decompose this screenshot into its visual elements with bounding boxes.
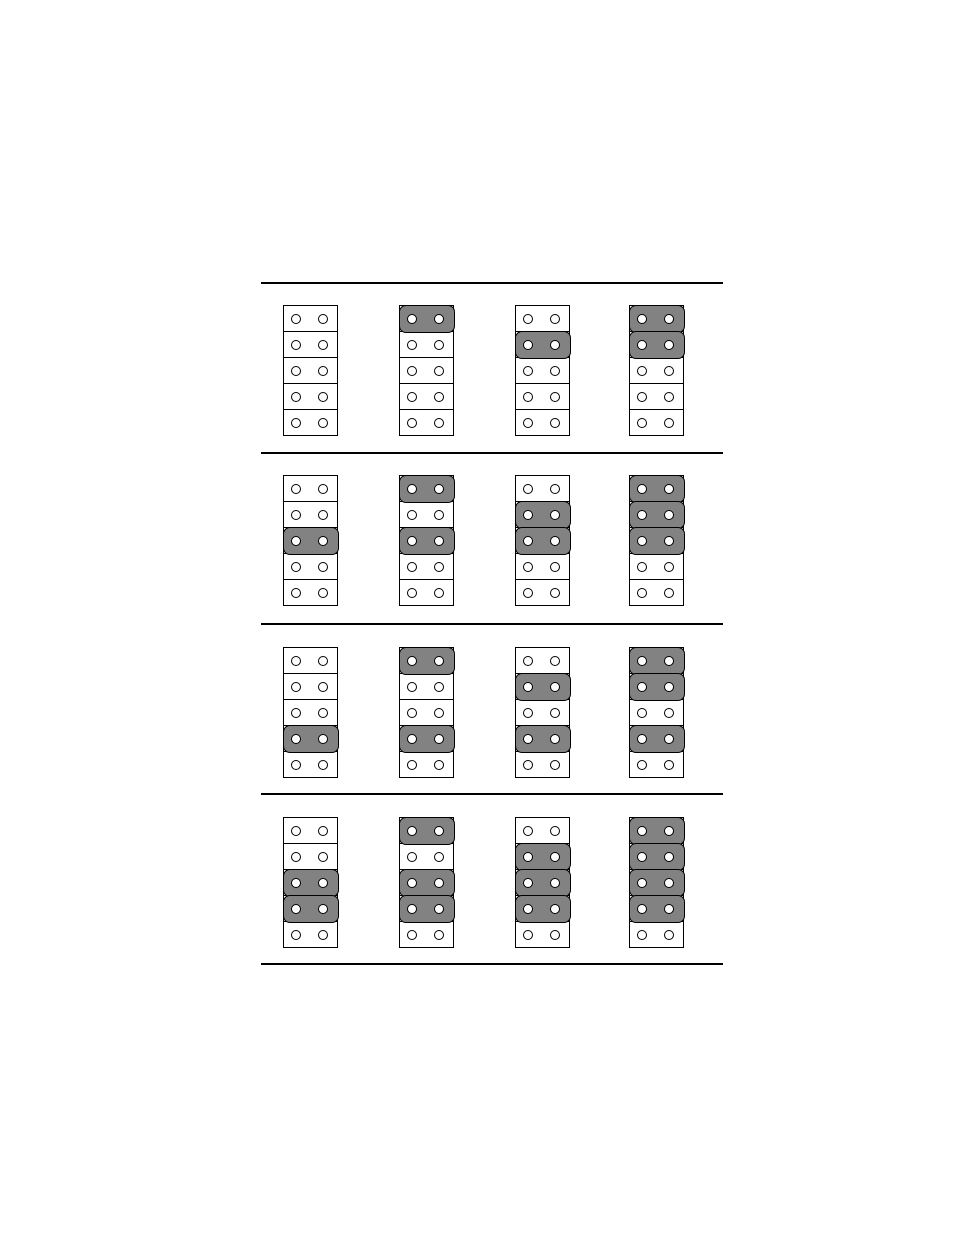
pin-circle [407, 392, 417, 402]
pin-circle [664, 734, 674, 744]
jumper-position [516, 818, 569, 844]
jumper-position [630, 896, 683, 922]
jumper-position [516, 844, 569, 870]
pin-circle [291, 930, 301, 940]
pin-circle [434, 536, 444, 546]
pin-circle [664, 484, 674, 494]
pin-circle [664, 852, 674, 862]
jumper-block [515, 475, 570, 606]
pin-circle [664, 510, 674, 520]
jumper-block [515, 647, 570, 778]
pin-circle [407, 340, 417, 350]
jumper-position [630, 476, 683, 502]
pin-circle [434, 734, 444, 744]
pin-circle [407, 366, 417, 376]
pin-circle [664, 682, 674, 692]
pin-circle [664, 562, 674, 572]
pin-circle [291, 734, 301, 744]
jumper-block [283, 647, 338, 778]
jumper-position [284, 554, 337, 580]
pin-circle [318, 418, 328, 428]
pin-circle [637, 340, 647, 350]
jumper-position [516, 700, 569, 726]
pin-circle [434, 484, 444, 494]
pin-circle [291, 852, 301, 862]
pin-circle [664, 760, 674, 770]
jumper-block [629, 817, 684, 948]
pin-circle [664, 826, 674, 836]
pin-circle [407, 826, 417, 836]
pin-circle [291, 904, 301, 914]
jumper-position [516, 648, 569, 674]
pin-circle [550, 904, 560, 914]
jumper-position [400, 502, 453, 528]
pin-circle [291, 484, 301, 494]
pin-circle [550, 314, 560, 324]
pin-circle [407, 510, 417, 520]
pin-circle [664, 588, 674, 598]
pin-circle [637, 734, 647, 744]
jumper-position [400, 554, 453, 580]
manual-page [0, 0, 954, 1235]
jumper-position [630, 700, 683, 726]
pin-circle [550, 930, 560, 940]
pin-circle [550, 708, 560, 718]
pin-circle [637, 536, 647, 546]
pin-circle [637, 878, 647, 888]
jumper-block [399, 647, 454, 778]
jumper-position [630, 358, 683, 384]
pin-circle [407, 418, 417, 428]
jumper-position [516, 358, 569, 384]
pin-circle [664, 708, 674, 718]
jumper-position [516, 554, 569, 580]
pin-circle [664, 536, 674, 546]
pin-circle [407, 708, 417, 718]
pin-circle [318, 656, 328, 666]
pin-circle [318, 878, 328, 888]
pin-circle [434, 930, 444, 940]
jumper-block [515, 305, 570, 436]
pin-circle [637, 484, 647, 494]
jumper-block [629, 475, 684, 606]
pin-circle [318, 536, 328, 546]
pin-circle [523, 536, 533, 546]
pin-circle [550, 340, 560, 350]
pin-circle [637, 760, 647, 770]
jumper-position [400, 726, 453, 752]
jumper-block [399, 475, 454, 606]
pin-circle [318, 760, 328, 770]
jumper-position [516, 580, 569, 605]
jumper-position [284, 528, 337, 554]
jumper-position [400, 674, 453, 700]
pin-circle [434, 708, 444, 718]
pin-circle [434, 904, 444, 914]
jumper-position [630, 818, 683, 844]
pin-circle [550, 878, 560, 888]
pin-circle [318, 392, 328, 402]
jumper-position [284, 306, 337, 332]
jumper-position [516, 726, 569, 752]
jumper-position [630, 752, 683, 777]
pin-circle [291, 878, 301, 888]
jumper-position [400, 700, 453, 726]
pin-circle [550, 760, 560, 770]
pin-circle [291, 314, 301, 324]
jumper-position [284, 752, 337, 777]
jumper-position [516, 332, 569, 358]
pin-circle [318, 366, 328, 376]
jumper-position [400, 844, 453, 870]
pin-circle [523, 826, 533, 836]
jumper-position [284, 358, 337, 384]
jumper-position [400, 384, 453, 410]
pin-circle [637, 562, 647, 572]
pin-circle [318, 562, 328, 572]
pin-circle [291, 562, 301, 572]
jumper-block [515, 817, 570, 948]
pin-circle [523, 392, 533, 402]
pin-circle [637, 392, 647, 402]
pin-circle [637, 708, 647, 718]
pin-circle [523, 852, 533, 862]
jumper-block [399, 817, 454, 948]
jumper-block [283, 475, 338, 606]
pin-circle [407, 852, 417, 862]
jumper-position [630, 844, 683, 870]
jumper-position [400, 922, 453, 947]
pin-circle [664, 314, 674, 324]
pin-circle [407, 314, 417, 324]
jumper-position [630, 648, 683, 674]
horizontal-rule [261, 623, 723, 625]
pin-circle [523, 878, 533, 888]
pin-circle [291, 588, 301, 598]
pin-circle [523, 510, 533, 520]
pin-circle [434, 392, 444, 402]
jumper-position [516, 306, 569, 332]
jumper-position [630, 922, 683, 947]
pin-circle [523, 904, 533, 914]
pin-circle [291, 366, 301, 376]
jumper-position [516, 528, 569, 554]
pin-circle [523, 418, 533, 428]
pin-circle [434, 366, 444, 376]
pin-circle [523, 588, 533, 598]
jumper-position [516, 922, 569, 947]
jumper-position [284, 410, 337, 435]
jumper-position [630, 502, 683, 528]
jumper-position [284, 384, 337, 410]
pin-circle [291, 760, 301, 770]
jumper-position [630, 528, 683, 554]
pin-circle [550, 484, 560, 494]
jumper-position [516, 384, 569, 410]
jumper-position [400, 476, 453, 502]
jumper-position [630, 384, 683, 410]
jumper-position [284, 726, 337, 752]
pin-circle [407, 588, 417, 598]
pin-circle [318, 484, 328, 494]
pin-circle [523, 930, 533, 940]
pin-circle [407, 562, 417, 572]
jumper-position [400, 648, 453, 674]
jumper-position [630, 726, 683, 752]
pin-circle [664, 930, 674, 940]
pin-circle [407, 930, 417, 940]
jumper-position [516, 870, 569, 896]
jumper-position [516, 896, 569, 922]
jumper-position [284, 922, 337, 947]
pin-circle [291, 418, 301, 428]
pin-circle [523, 562, 533, 572]
pin-circle [550, 656, 560, 666]
jumper-position [284, 896, 337, 922]
jumper-block [283, 305, 338, 436]
pin-circle [318, 852, 328, 862]
pin-circle [523, 366, 533, 376]
pin-circle [407, 878, 417, 888]
jumper-position [630, 332, 683, 358]
pin-circle [664, 418, 674, 428]
pin-circle [523, 760, 533, 770]
jumper-position [400, 752, 453, 777]
horizontal-rule [261, 282, 723, 284]
jumper-position [400, 528, 453, 554]
pin-circle [637, 418, 647, 428]
pin-circle [523, 682, 533, 692]
jumper-position [630, 580, 683, 605]
jumper-position [284, 476, 337, 502]
pin-circle [664, 340, 674, 350]
pin-circle [637, 510, 647, 520]
jumper-position [284, 700, 337, 726]
jumper-position [400, 358, 453, 384]
pin-circle [550, 588, 560, 598]
pin-circle [318, 708, 328, 718]
pin-circle [550, 826, 560, 836]
jumper-position [400, 332, 453, 358]
horizontal-rule [261, 963, 723, 965]
pin-circle [434, 314, 444, 324]
pin-circle [318, 904, 328, 914]
pin-circle [291, 536, 301, 546]
pin-circle [434, 682, 444, 692]
pin-circle [407, 484, 417, 494]
pin-circle [318, 734, 328, 744]
pin-circle [550, 682, 560, 692]
jumper-position [284, 674, 337, 700]
pin-circle [637, 656, 647, 666]
pin-circle [550, 366, 560, 376]
pin-circle [434, 562, 444, 572]
jumper-position [284, 332, 337, 358]
pin-circle [523, 340, 533, 350]
pin-circle [550, 734, 560, 744]
jumper-position [284, 648, 337, 674]
pin-circle [407, 682, 417, 692]
jumper-block [629, 305, 684, 436]
pin-circle [291, 826, 301, 836]
pin-circle [291, 682, 301, 692]
pin-circle [291, 340, 301, 350]
pin-circle [434, 760, 444, 770]
pin-circle [434, 340, 444, 350]
pin-circle [664, 656, 674, 666]
pin-circle [434, 588, 444, 598]
pin-circle [550, 510, 560, 520]
jumper-position [516, 674, 569, 700]
pin-circle [434, 510, 444, 520]
pin-circle [407, 734, 417, 744]
pin-circle [407, 536, 417, 546]
pin-circle [318, 682, 328, 692]
pin-circle [318, 340, 328, 350]
jumper-position [400, 410, 453, 435]
jumper-position [400, 896, 453, 922]
pin-circle [407, 656, 417, 666]
pin-circle [291, 392, 301, 402]
jumper-position [516, 476, 569, 502]
pin-circle [550, 392, 560, 402]
pin-circle [637, 904, 647, 914]
pin-circle [637, 852, 647, 862]
pin-circle [550, 536, 560, 546]
jumper-position [284, 502, 337, 528]
pin-circle [523, 314, 533, 324]
pin-circle [318, 930, 328, 940]
pin-circle [318, 826, 328, 836]
pin-circle [434, 418, 444, 428]
pin-circle [291, 656, 301, 666]
jumper-position [284, 580, 337, 605]
jumper-position [630, 870, 683, 896]
pin-circle [664, 392, 674, 402]
pin-circle [550, 852, 560, 862]
pin-circle [637, 682, 647, 692]
pin-circle [318, 588, 328, 598]
pin-circle [318, 510, 328, 520]
jumper-position [284, 818, 337, 844]
pin-circle [550, 418, 560, 428]
pin-circle [550, 562, 560, 572]
jumper-position [400, 870, 453, 896]
pin-circle [637, 588, 647, 598]
pin-circle [434, 826, 444, 836]
jumper-position [630, 674, 683, 700]
pin-circle [664, 366, 674, 376]
pin-circle [664, 878, 674, 888]
pin-circle [291, 708, 301, 718]
jumper-position [630, 410, 683, 435]
jumper-block [629, 647, 684, 778]
pin-circle [523, 484, 533, 494]
pin-circle [434, 656, 444, 666]
jumper-position [400, 580, 453, 605]
jumper-position [400, 306, 453, 332]
jumper-position [516, 502, 569, 528]
pin-circle [523, 734, 533, 744]
pin-circle [637, 826, 647, 836]
pin-circle [318, 314, 328, 324]
horizontal-rule [261, 452, 723, 454]
pin-circle [434, 852, 444, 862]
horizontal-rule [261, 793, 723, 795]
pin-circle [637, 366, 647, 376]
pin-circle [407, 760, 417, 770]
pin-circle [523, 656, 533, 666]
jumper-position [284, 844, 337, 870]
jumper-position [630, 554, 683, 580]
jumper-position [516, 410, 569, 435]
jumper-block [399, 305, 454, 436]
pin-circle [291, 510, 301, 520]
pin-circle [664, 904, 674, 914]
pin-circle [523, 708, 533, 718]
jumper-position [516, 752, 569, 777]
jumper-position [400, 818, 453, 844]
jumper-position [284, 870, 337, 896]
jumper-block [283, 817, 338, 948]
pin-circle [637, 314, 647, 324]
pin-circle [434, 878, 444, 888]
jumper-position [630, 306, 683, 332]
pin-circle [637, 930, 647, 940]
pin-circle [407, 904, 417, 914]
